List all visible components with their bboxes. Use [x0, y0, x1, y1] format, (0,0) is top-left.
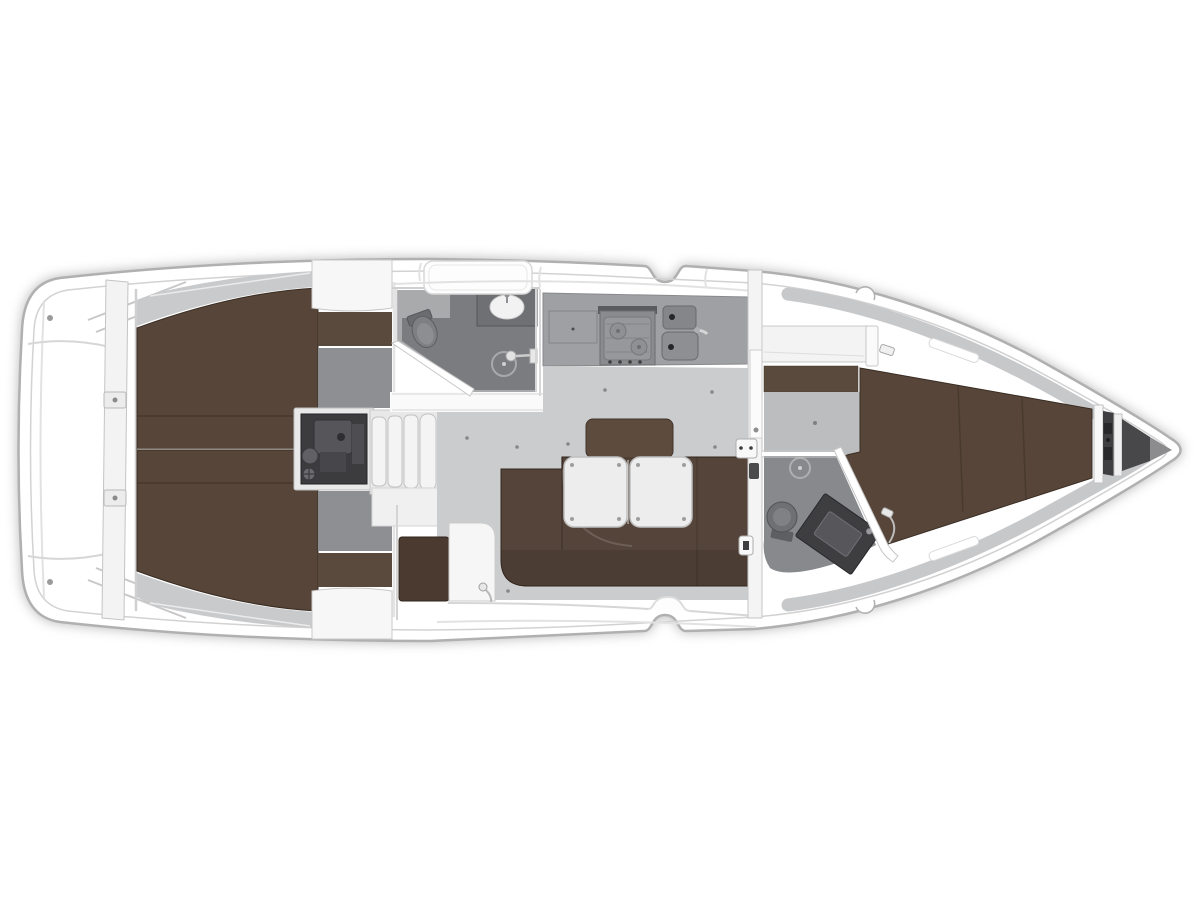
wardrobe-front: [318, 312, 392, 346]
step-3: [404, 415, 418, 488]
latch-slot: [749, 463, 759, 479]
bilge-handle: [479, 583, 487, 591]
partition: [449, 523, 495, 601]
under-step-locker: [372, 488, 448, 526]
door-handle: [754, 428, 759, 433]
salon-tables: [564, 457, 692, 527]
shelf-end-cap: [866, 326, 878, 366]
drain-1: [669, 314, 675, 320]
door-latch-plate: [736, 439, 757, 458]
deck-hatch: [424, 261, 532, 294]
companionway-steps: [370, 410, 448, 526]
drain-dot: [502, 362, 506, 366]
stern-cleat-top: [47, 315, 53, 321]
step-2: [388, 416, 402, 487]
chain-well: [1103, 411, 1114, 476]
shower-head: [506, 351, 516, 361]
latch-slot-2: [743, 541, 749, 550]
cabin-door: [750, 350, 762, 438]
stove: [598, 306, 657, 365]
shelf: [762, 326, 868, 362]
sink-2: [662, 332, 698, 360]
floor-fastener: [813, 421, 817, 425]
step-4: [420, 414, 436, 490]
wardrobe-locker: [312, 260, 392, 311]
drain-2: [668, 344, 674, 350]
yacht-floor-plan: [0, 0, 1200, 899]
nav-seat: [399, 537, 449, 601]
wardrobe-locker: [312, 588, 392, 639]
settee-backrest: [586, 419, 673, 458]
folding-table-left: [564, 457, 627, 527]
transom-wall: [102, 280, 128, 620]
locker-knob: [572, 328, 575, 331]
step-1: [372, 417, 386, 486]
settee-front-shade: [501, 550, 748, 586]
toilet: [767, 502, 797, 542]
head-lower-wall: [390, 392, 543, 412]
dressing-floor: [764, 392, 860, 454]
locker-divider: [1114, 414, 1122, 476]
locker-bulkhead: [1094, 405, 1103, 483]
sink-1: [663, 306, 696, 329]
stern-cleat-bottom: [47, 579, 53, 585]
folding-table-right: [630, 457, 692, 527]
wardrobe-front: [318, 553, 392, 587]
wardrobe-front: [764, 366, 858, 392]
dressing-floor: [318, 348, 392, 408]
galley: [543, 293, 748, 366]
yacht-floor-plan-image: [0, 0, 1200, 899]
engine-compartment: [294, 408, 374, 490]
